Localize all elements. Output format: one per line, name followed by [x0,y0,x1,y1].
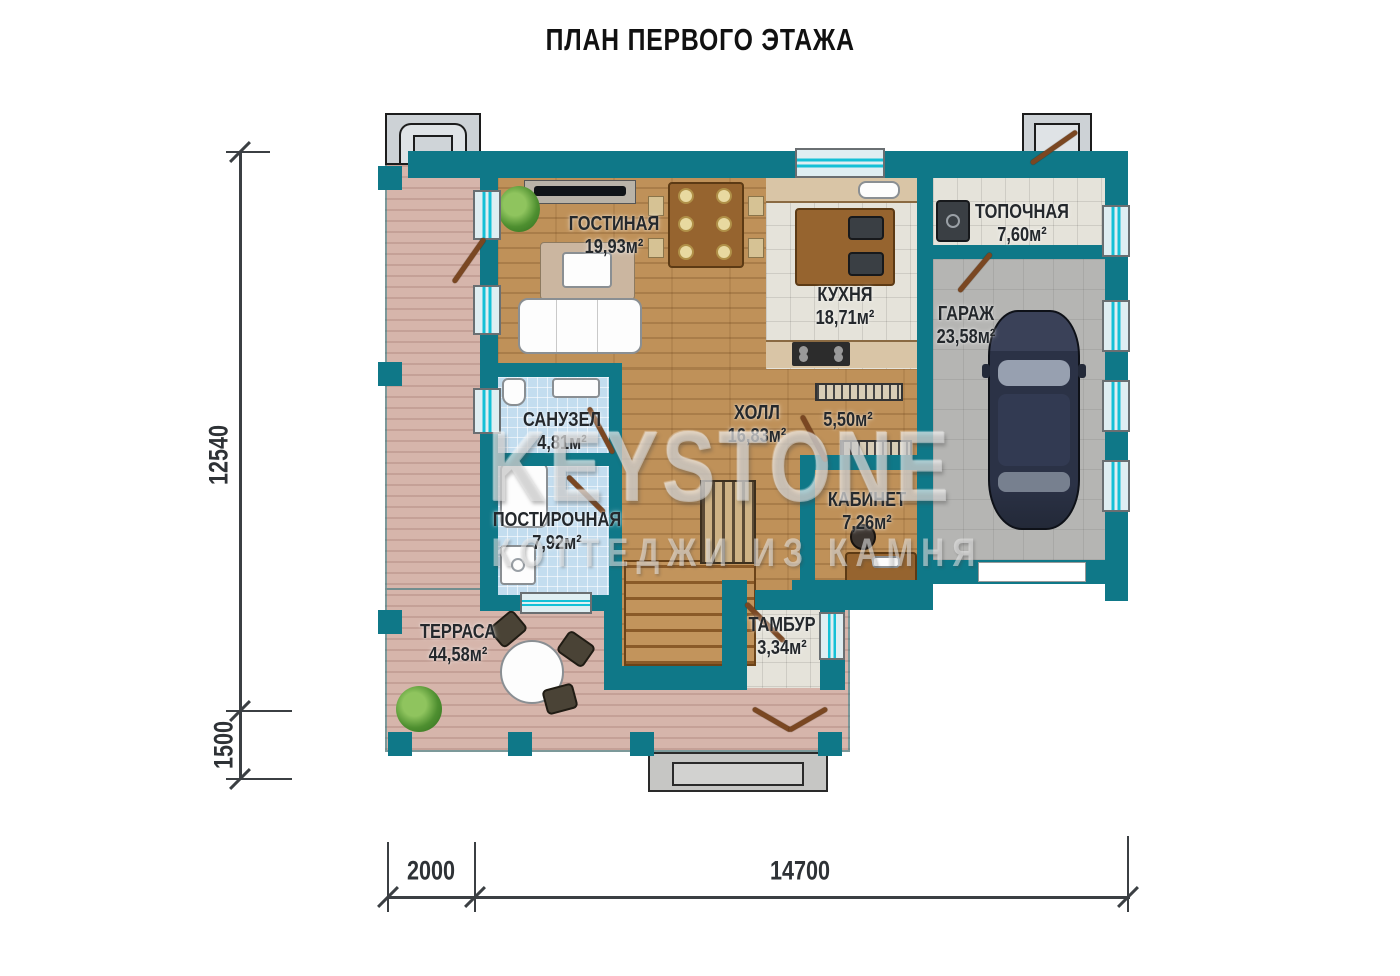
plant-terrace [396,686,442,732]
label-laundry: ПОСТИРОЧНАЯ 7,92м² [493,509,621,555]
sofa [518,298,642,354]
label-terrace: ТЕРРАСА 44,58м² [420,621,496,667]
window-living-left-2 [473,285,501,335]
dimension-value: 2000 [407,856,455,886]
room-area: 4,81м² [523,431,601,455]
label-garage: ГАРАЖ 23,58м² [937,303,996,349]
label-stairwell-area: 5,50м² [823,408,873,432]
porch-step [672,762,804,786]
wall-boiler-garage [933,245,1105,259]
window-garage-right-3 [1102,460,1130,512]
office-monitor [872,556,900,568]
stove [792,342,850,366]
window-bathroom-left [473,388,501,434]
wall-office-top [800,455,933,470]
dimension-line-left [239,152,242,780]
room-name: КАБИНЕТ [828,489,906,511]
wall-kitchen-garage [917,177,933,601]
boiler-dial [946,214,960,228]
page-title: ПЛАН ПЕРВОГО ЭТАЖА [0,22,1400,58]
dimension-extension [226,151,270,153]
room-area: 7,26м² [828,511,906,535]
terrace-pillar [378,166,402,190]
tv-screen [534,186,626,196]
label-bathroom: САНУЗЕЛ 4,81м² [523,409,601,455]
room-area: 23,58м² [937,325,996,349]
place-setting [678,188,694,204]
dimension-line-bottom [388,896,1130,899]
washer-door [511,558,525,572]
boiler-chimney [1022,113,1092,155]
label-boiler-room: ТОПОЧНАЯ 7,60м² [975,201,1069,247]
car-mirror [1078,364,1086,378]
dimension-label-1500: 1500 [209,721,240,769]
room-name: ХОЛЛ [728,402,787,424]
room-name: ТЕРРАСА [420,621,496,643]
room-area: 19,93м² [569,235,660,259]
dimension-value: 1500 [209,721,239,769]
wall-hall-bathroom [609,363,622,611]
window-living-left-1 [473,190,501,240]
dimension-value: 12540 [204,425,234,485]
window-garage-right-2 [1102,380,1130,432]
room-area: 5,50м² [823,408,873,432]
room-area: 18,71м² [816,306,875,330]
room-area: 44,58м² [420,643,496,667]
boiler-unit [936,200,970,242]
terrace-pillar [388,732,412,756]
wall-vestibule-left [722,580,747,690]
room-area: 7,92м² [493,531,621,555]
label-vestibule: ТАМБУР 3,34м² [748,614,815,660]
car [988,310,1080,530]
toilet [502,378,526,406]
wall-office-left [800,455,815,595]
window-garage-right-1 [1102,300,1130,352]
car-roof [998,394,1070,466]
room-name: ТАМБУР [748,614,815,636]
window-vestibule-right [819,612,845,660]
burner [834,353,843,362]
car-rear-window [998,472,1070,492]
terrace-pillar [818,732,842,756]
room-area: 7,60м² [975,223,1069,247]
window-kitchen-top [795,148,885,178]
dimension-extension [1127,836,1129,912]
label-living-room: ГОСТИНАЯ 19,93м² [569,213,660,259]
label-hall: ХОЛЛ 16,83м² [728,402,787,448]
room-name: ГОСТИНАЯ [569,213,660,235]
kitchen-chair [848,252,884,276]
staircase-railing [700,480,756,564]
staircase-upper-flight [815,383,903,401]
place-setting [716,244,732,260]
terrace-pillar [378,362,402,386]
dimension-extension [387,842,389,912]
page-title-text: ПЛАН ПЕРВОГО ЭТАЖА [545,22,854,58]
wall-top [408,151,1128,178]
room-name: ГАРАЖ [937,303,996,325]
room-name: ПОСТИРОЧНАЯ [493,509,621,531]
boiler-flue [1034,123,1080,153]
kitchen-chair [848,216,884,240]
place-setting [678,216,694,232]
label-office: КАБИНЕТ 7,26м² [828,489,906,535]
room-name: САНУЗЕЛ [523,409,601,431]
dining-chair [748,238,764,258]
terrace-pillar [630,732,654,756]
dimension-label-2000: 2000 [407,856,455,887]
wall-office-bottom [755,590,933,610]
burner [799,353,808,362]
room-name: ТОПОЧНАЯ [975,201,1069,223]
plant-living-room [498,186,540,232]
place-setting [716,216,732,232]
car-mirror [982,364,990,378]
window-laundry-bottom [520,592,592,614]
floor-plan-page: ПЛАН ПЕРВОГО ЭТАЖА [0,0,1400,976]
place-setting [678,244,694,260]
car-windshield [998,360,1070,386]
garage-door-opening [978,562,1086,582]
terrace-pillar [378,610,402,634]
kitchen-sink [858,181,900,199]
terrace-pillar [508,732,532,756]
room-area: 3,34м² [748,636,815,660]
wall-bathroom-top [497,363,622,377]
dimension-value: 14700 [770,856,830,886]
entrance-porch [648,752,828,792]
room-name: КУХНЯ [816,284,875,306]
room-area: 16,83м² [728,424,787,448]
place-setting [716,188,732,204]
dimension-label-12540: 12540 [204,425,235,485]
window-boiler-right [1102,205,1130,257]
dimension-label-14700: 14700 [770,856,830,887]
dimension-extension [474,842,476,912]
dining-chair [748,196,764,216]
label-kitchen: КУХНЯ 18,71м² [816,284,875,330]
bathroom-sink [552,378,600,398]
